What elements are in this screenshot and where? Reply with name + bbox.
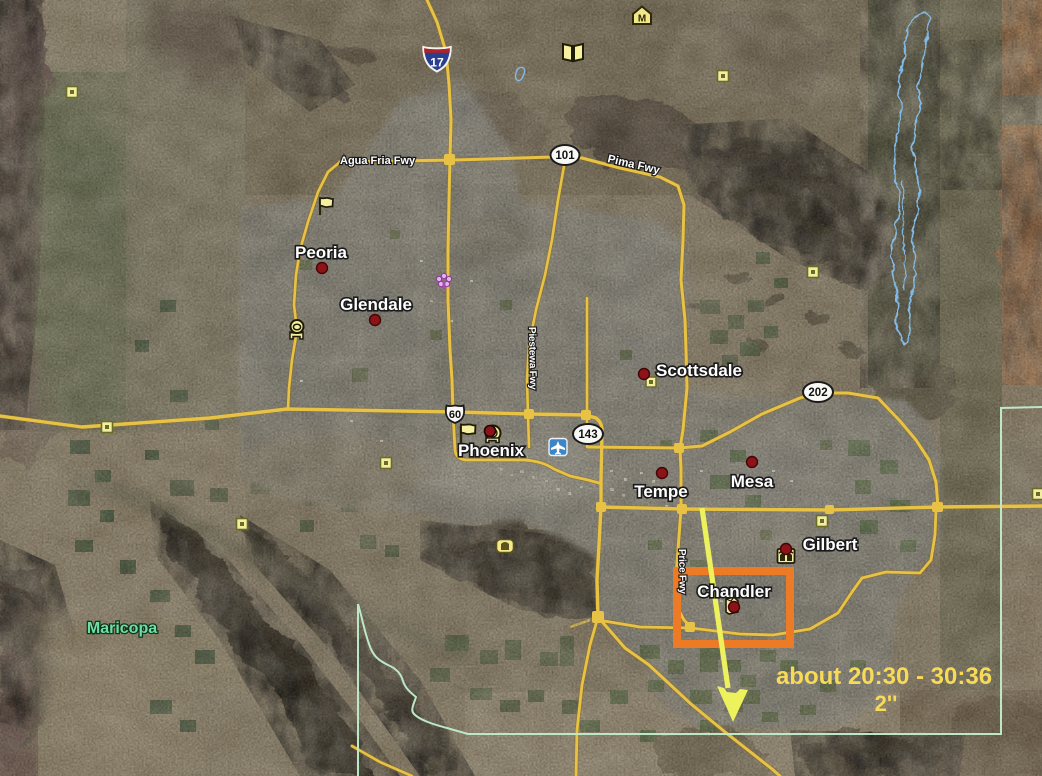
svg-text:143: 143 [578, 429, 597, 441]
svg-text:Tempe: Tempe [634, 482, 688, 501]
svg-text:Maricopa: Maricopa [87, 620, 157, 637]
svg-text:Piestewa Fwy: Piestewa Fwy [526, 327, 538, 390]
svg-text:Glendale: Glendale [340, 295, 412, 314]
svg-text:Gilbert: Gilbert [803, 535, 858, 554]
svg-text:about 20:30 - 30:36: about 20:30 - 30:36 [776, 663, 992, 690]
svg-text:202: 202 [808, 387, 827, 399]
svg-text:Chandler: Chandler [697, 582, 771, 601]
svg-text:Scottsdale: Scottsdale [656, 361, 742, 380]
svg-text:Mesa: Mesa [731, 472, 774, 491]
svg-text:M: M [638, 14, 646, 25]
svg-text:17: 17 [430, 55, 444, 69]
svg-text:60: 60 [449, 409, 461, 421]
svg-text:Price Fwy: Price Fwy [676, 549, 688, 595]
svg-text:Agua Fria Fwy: Agua Fria Fwy [340, 155, 416, 167]
svg-text:101: 101 [555, 150, 575, 162]
svg-text:Peoria: Peoria [295, 243, 348, 262]
svg-text:Phoenix: Phoenix [458, 441, 525, 460]
svg-text:2'': 2'' [875, 691, 898, 716]
